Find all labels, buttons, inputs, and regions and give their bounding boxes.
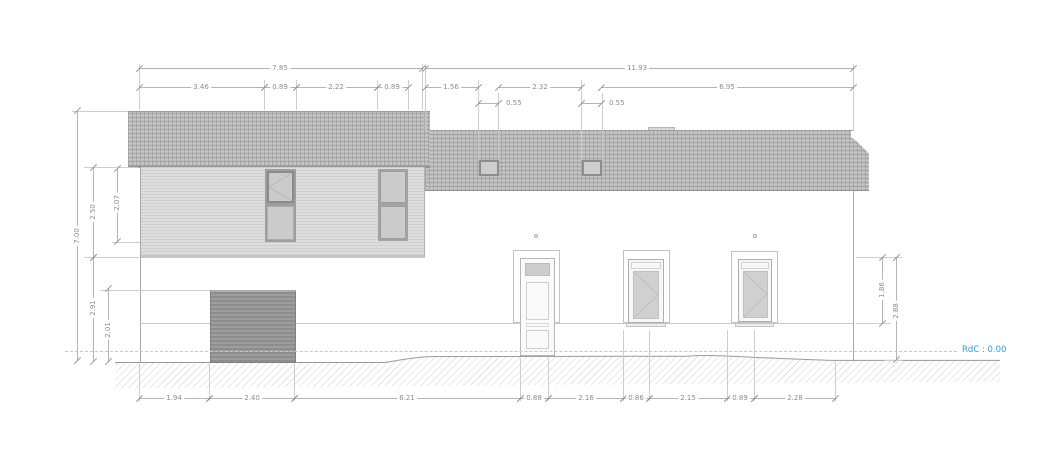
dim-label-bot-089: 0.89 [730, 394, 750, 402]
upper-window-left [265, 169, 296, 242]
elevation-drawing: RdC : 0.00 [0, 0, 1052, 456]
ground-window-2-transom [741, 262, 770, 269]
wall-vent-1 [534, 234, 538, 238]
dim-label-left-291: 2.91 [89, 298, 97, 318]
upper-window-left-bottom-pane [267, 206, 294, 240]
dim-label-bot-621: 6.21 [397, 394, 417, 402]
dim-label-right-186: 1.86 [878, 280, 886, 300]
dim-label-left-201: 2.01 [104, 320, 112, 340]
dim-label-top-222: 2.22 [326, 83, 346, 91]
dim-label-right-288: 2.88 [892, 301, 900, 321]
dim-label-top-695: 6.95 [717, 83, 737, 91]
dim-label-bot-194: 1.94 [164, 394, 184, 402]
dim-label-left-207: 2.07 [113, 193, 121, 213]
dim-label-top-089b: 0.89 [382, 83, 402, 91]
dim-line [479, 103, 499, 104]
dim-label-top-1193: 11.93 [625, 64, 649, 72]
window-swing-symbol [744, 272, 767, 317]
dim-label-bot-216: 2.16 [576, 394, 596, 402]
right-roof-bottom-edge [425, 190, 869, 192]
ext-line [581, 80, 582, 160]
ext-line [754, 330, 755, 401]
upper-window-right-top-pane [380, 171, 406, 203]
upper-window-right-bottom-pane [380, 206, 406, 239]
ground-window-2-sill [735, 323, 774, 327]
right-roof-top-edge [425, 130, 853, 131]
entry-door-upper-panel [526, 282, 549, 320]
entry-door-transom [525, 263, 550, 276]
ext-line [520, 358, 521, 401]
dim-label-top-055b: 0.55 [607, 99, 627, 107]
ext-line [377, 80, 378, 110]
left-wall-edge [140, 167, 141, 363]
wall-vent-2 [753, 234, 757, 238]
ext-line [856, 323, 890, 324]
dim-label-bot-240: 2.40 [242, 394, 262, 402]
window-swing-symbol [269, 173, 292, 201]
window-swing-symbol [634, 272, 658, 318]
ext-line [72, 111, 128, 112]
entry-door-lower-panel [526, 330, 549, 349]
entry-door-mid-band [526, 323, 549, 327]
ext-line [478, 80, 479, 160]
dim-label-top-089a: 0.89 [270, 83, 290, 91]
ground-window-1-glazing [633, 271, 659, 319]
dim-label-bot-215: 2.15 [678, 394, 698, 402]
ground-window-2-glazing [743, 271, 768, 318]
ext-line [835, 362, 836, 401]
ground-window-2 [738, 259, 773, 322]
dim-line [581, 103, 601, 104]
ext-line [623, 330, 624, 401]
ext-line [100, 290, 210, 291]
upper-window-right [378, 169, 408, 241]
dim-label-bot-088: 0.88 [524, 394, 544, 402]
left-roof [128, 111, 430, 168]
level-label: RdC : 0.00 [962, 345, 1006, 355]
ext-line [548, 358, 549, 401]
skylight-left [479, 160, 499, 176]
dim-label-top-156: 1.56 [441, 83, 461, 91]
dim-label-top-055a: 0.55 [504, 99, 524, 107]
ground-level-dashed-line [65, 351, 957, 352]
ext-line [853, 64, 854, 131]
ground-window-1 [628, 259, 664, 323]
dim-label-left-250: 2.50 [89, 202, 97, 222]
dim-label-top-785: 7.85 [270, 64, 290, 72]
dim-label-bot-086: 0.86 [626, 394, 646, 402]
dim-label-left-700: 7.00 [73, 226, 81, 246]
skylight-right [582, 160, 602, 176]
right-wall-edge [853, 190, 854, 360]
ext-line [296, 80, 297, 110]
dim-label-top-232: 2.32 [530, 83, 550, 91]
dim-label-bot-228: 2.28 [785, 394, 805, 402]
dim-label-top-346: 3.46 [191, 83, 211, 91]
ground-window-1-sill [626, 323, 666, 327]
upper-window-left-top-pane [267, 171, 294, 203]
ground-window-1-transom [631, 262, 661, 269]
ext-line [649, 330, 650, 401]
ext-line [727, 330, 728, 401]
entry-door [520, 258, 555, 357]
ext-line [425, 64, 426, 130]
